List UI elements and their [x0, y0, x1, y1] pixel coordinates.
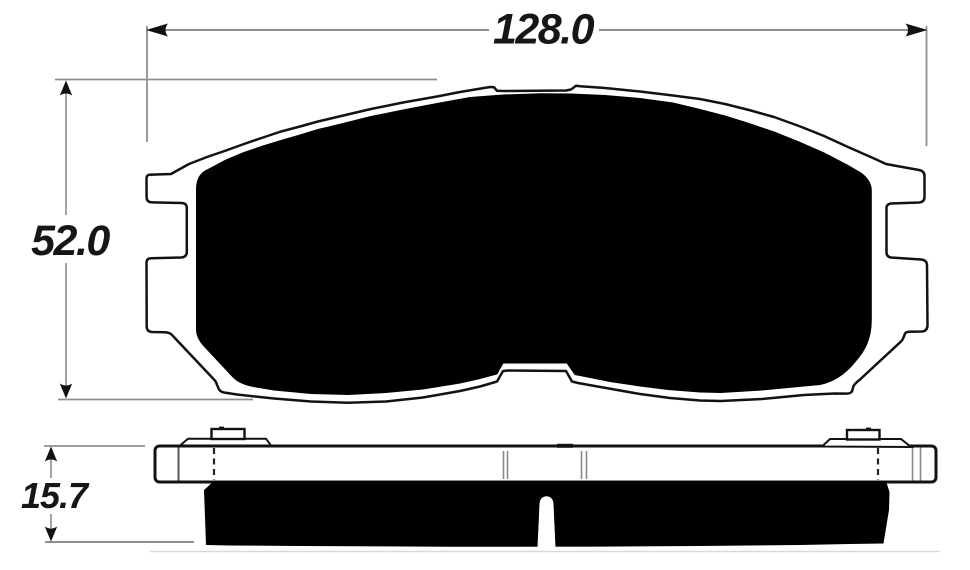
svg-text:15.7: 15.7: [21, 475, 90, 516]
svg-text:128.0: 128.0: [493, 6, 595, 54]
svg-text:52.0: 52.0: [31, 217, 110, 265]
